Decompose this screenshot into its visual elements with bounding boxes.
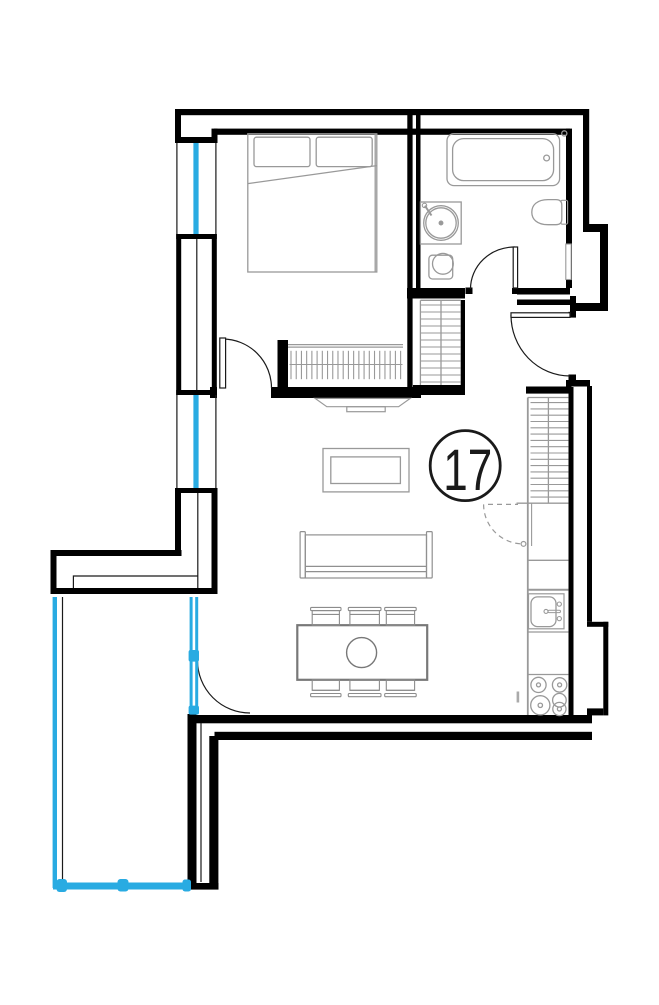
svg-text:17: 17 — [443, 438, 492, 503]
